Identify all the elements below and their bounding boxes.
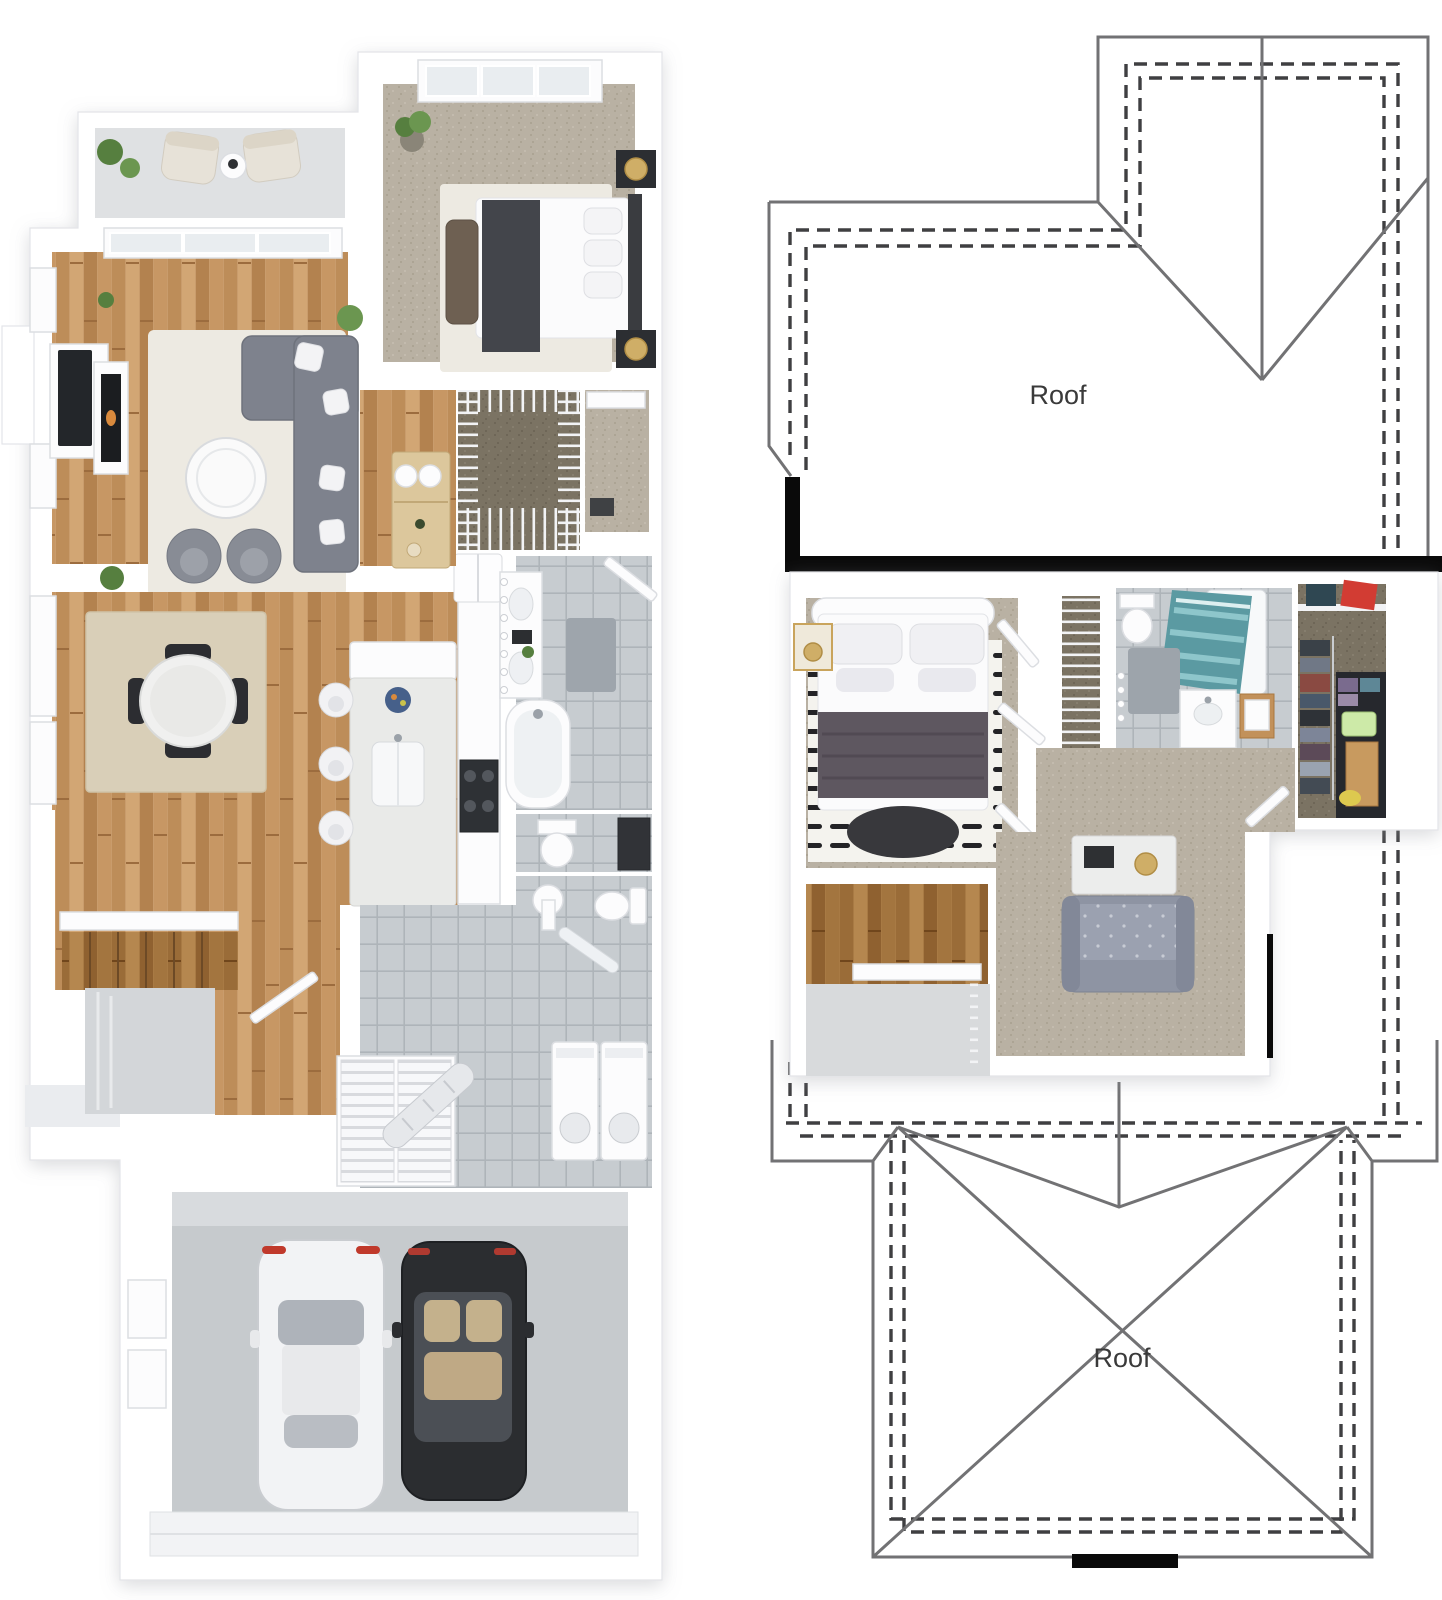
car-mirror: [250, 1330, 260, 1348]
tub-faucet: [533, 709, 543, 719]
second-floor-bedroom: [794, 598, 1046, 868]
dining-table-top: [150, 665, 226, 737]
vanity-plant: [522, 646, 534, 658]
balcony-plant: [97, 139, 123, 165]
bath-rug: [566, 618, 616, 692]
flex-dresser: [587, 392, 645, 408]
walkin-closet-1f: [458, 390, 580, 550]
stair-rail-balusters: [970, 982, 978, 1064]
bed2-pillow: [910, 624, 984, 664]
toilet-bowl: [541, 833, 573, 867]
bed-bench: [446, 220, 478, 324]
green-bin: [1342, 712, 1376, 736]
garage-window: [128, 1350, 166, 1408]
car-rear-glass: [278, 1300, 364, 1345]
teal-box: [1306, 584, 1336, 606]
living-window: [30, 268, 56, 332]
bedroom-plant: [409, 111, 431, 133]
car-roof: [282, 1345, 360, 1415]
taillight: [494, 1248, 516, 1255]
table-lamp: [625, 338, 647, 360]
vanity-tray: [512, 630, 532, 644]
tv-screen: [58, 350, 92, 446]
island-end-cap: [350, 642, 456, 680]
second-bath: [516, 876, 652, 994]
sliding-door-pane: [184, 233, 256, 253]
chimney-bumpout: [2, 326, 34, 444]
loft: [996, 832, 1245, 1056]
bed-throw-blanket: [482, 200, 540, 352]
fruit-bowl: [385, 687, 411, 713]
black-band-bottom: [1072, 1554, 1178, 1568]
car-mirror: [392, 1322, 402, 1338]
island-faucet: [394, 734, 402, 742]
floorplan-svg: Roof Roof: [0, 0, 1442, 1600]
bar-nook: [360, 390, 456, 568]
bedroom-window-pane: [538, 66, 590, 96]
car-mirror: [524, 1322, 534, 1338]
bed2-pillow-small: [918, 668, 976, 692]
fireplace-flame: [106, 410, 116, 426]
taillight: [356, 1246, 380, 1254]
upper-roof-label: Roof: [1029, 380, 1087, 410]
stair-railing2: [853, 964, 981, 980]
shelf-box: [1245, 700, 1269, 730]
living-room: [30, 228, 363, 596]
dining-window: [30, 722, 56, 804]
pedestal-base: [542, 900, 555, 930]
bar-cart-bowl: [407, 543, 421, 557]
dryer-panel: [605, 1048, 643, 1058]
balcony: [95, 128, 345, 218]
first-floor-plan: [2, 52, 662, 1580]
black-wall-edge: [1267, 934, 1273, 1058]
floorplan-render: Roof Roof: [0, 0, 1442, 1600]
entry-porch: [85, 988, 215, 1114]
folded-clothes: [1360, 678, 1380, 692]
toilet-bowl: [595, 892, 629, 920]
lower-roof-eave-dash-inner: [904, 1140, 1341, 1532]
balcony-plant-2: [120, 158, 140, 178]
yellow-item: [1339, 790, 1361, 806]
flex-mat: [590, 498, 614, 516]
louver-door: [341, 1060, 394, 1182]
bedroom-window-pane: [482, 66, 534, 96]
gold-tray: [804, 643, 822, 661]
bathtub-basin: [514, 710, 562, 798]
garage-window: [128, 1280, 166, 1338]
hanging-clothes: [1300, 636, 1333, 800]
range-cooktop: [460, 760, 498, 832]
bottle: [415, 519, 425, 529]
lower-roof-hip-x: [873, 1127, 1372, 1557]
bath-cabinet: [618, 818, 650, 870]
sliding-door-pane: [110, 233, 182, 253]
vanity-sink: [509, 588, 533, 620]
bed2-pillow-small: [836, 668, 894, 692]
fruit: [391, 694, 397, 700]
toilet-tank: [630, 888, 646, 924]
car-back-seat: [424, 1352, 502, 1400]
master-bath: [500, 556, 658, 810]
garage: [128, 1192, 638, 1556]
toilet2-tank: [1120, 594, 1154, 608]
table-tray: [1084, 846, 1114, 868]
second-floor-unit: [790, 572, 1438, 1076]
bed-pillow: [584, 208, 622, 234]
red-box: [1340, 580, 1377, 610]
bath2-sink: [1194, 703, 1222, 725]
folded-clothes: [1338, 678, 1358, 692]
car-mirror: [382, 1330, 392, 1348]
second-floor-bathroom: [1116, 588, 1292, 748]
bed-pillow: [584, 272, 622, 298]
lower-roof-label: Roof: [1093, 1343, 1151, 1373]
black-car: [392, 1242, 534, 1500]
bath2-faucet: [1205, 697, 1212, 704]
bed-headboard: [628, 194, 642, 344]
stair-opening: [806, 984, 990, 1076]
bedroom-window-pane: [426, 66, 478, 96]
car-windshield: [284, 1415, 358, 1448]
bath2-rug: [1128, 648, 1180, 714]
linen-closet: [1062, 596, 1100, 758]
sliding-door-pane: [258, 233, 330, 253]
walkin-closet-2f: [1298, 580, 1386, 818]
stair-railing: [60, 912, 238, 930]
sofa-arm: [1176, 896, 1194, 992]
garage-floor: [172, 1192, 628, 1514]
dryer-door: [609, 1113, 639, 1143]
upper-roof-ridge-valleys: [1098, 37, 1428, 380]
cactus-decor: [98, 292, 114, 308]
balcony-chair-right: [242, 128, 302, 183]
sofa-arm: [1062, 896, 1080, 992]
taillight: [262, 1246, 286, 1254]
white-car: [250, 1240, 392, 1510]
gold-bowl: [1135, 853, 1157, 875]
table-lamp: [625, 158, 647, 180]
kitchen-counter: [458, 556, 500, 904]
taillight: [408, 1248, 430, 1255]
fruit: [400, 700, 406, 706]
bed2-ottoman: [847, 806, 959, 858]
car-seat: [424, 1300, 460, 1342]
flex-room: [585, 390, 649, 532]
black-wall-band-vertical: [785, 477, 800, 562]
second-floor-stairs: [806, 884, 990, 1076]
bed-pillow: [584, 240, 622, 266]
dining-window: [30, 596, 56, 716]
barrel-chair-seat: [180, 548, 208, 576]
toilet-room: [516, 814, 652, 872]
barrel-chair-seat: [240, 548, 268, 576]
lower-roof: Roof: [772, 1040, 1437, 1557]
washer-panel: [556, 1048, 594, 1058]
folded-clothes: [1338, 694, 1358, 706]
balcony-table-decor: [228, 159, 238, 169]
dining-plant: [100, 566, 124, 590]
black-wall-band-top: [785, 556, 1442, 572]
first-floor-bedroom: [383, 60, 656, 372]
toilet2-bowl: [1122, 609, 1152, 643]
bar-cart-plate: [395, 465, 417, 487]
island-stools: [319, 683, 353, 845]
hallway: [55, 810, 340, 1115]
bar-cart-plate: [419, 465, 441, 487]
second-floor-roof-plan: Roof Roof: [769, 37, 1442, 1568]
upper-roof-outline-left: [769, 202, 1098, 476]
corner-plant: [337, 305, 363, 331]
staircase: [62, 932, 238, 990]
car-seat: [466, 1300, 502, 1342]
washer-door: [560, 1113, 590, 1143]
closet-shelf-bottom: [458, 508, 580, 550]
balcony-chair-left: [160, 130, 220, 185]
garage-step: [172, 1192, 628, 1226]
sofa-tufting: [1074, 904, 1182, 960]
linen-wire-shelves: [1062, 596, 1100, 758]
bed2-pillow: [828, 624, 902, 664]
toilet-tank: [538, 820, 576, 834]
